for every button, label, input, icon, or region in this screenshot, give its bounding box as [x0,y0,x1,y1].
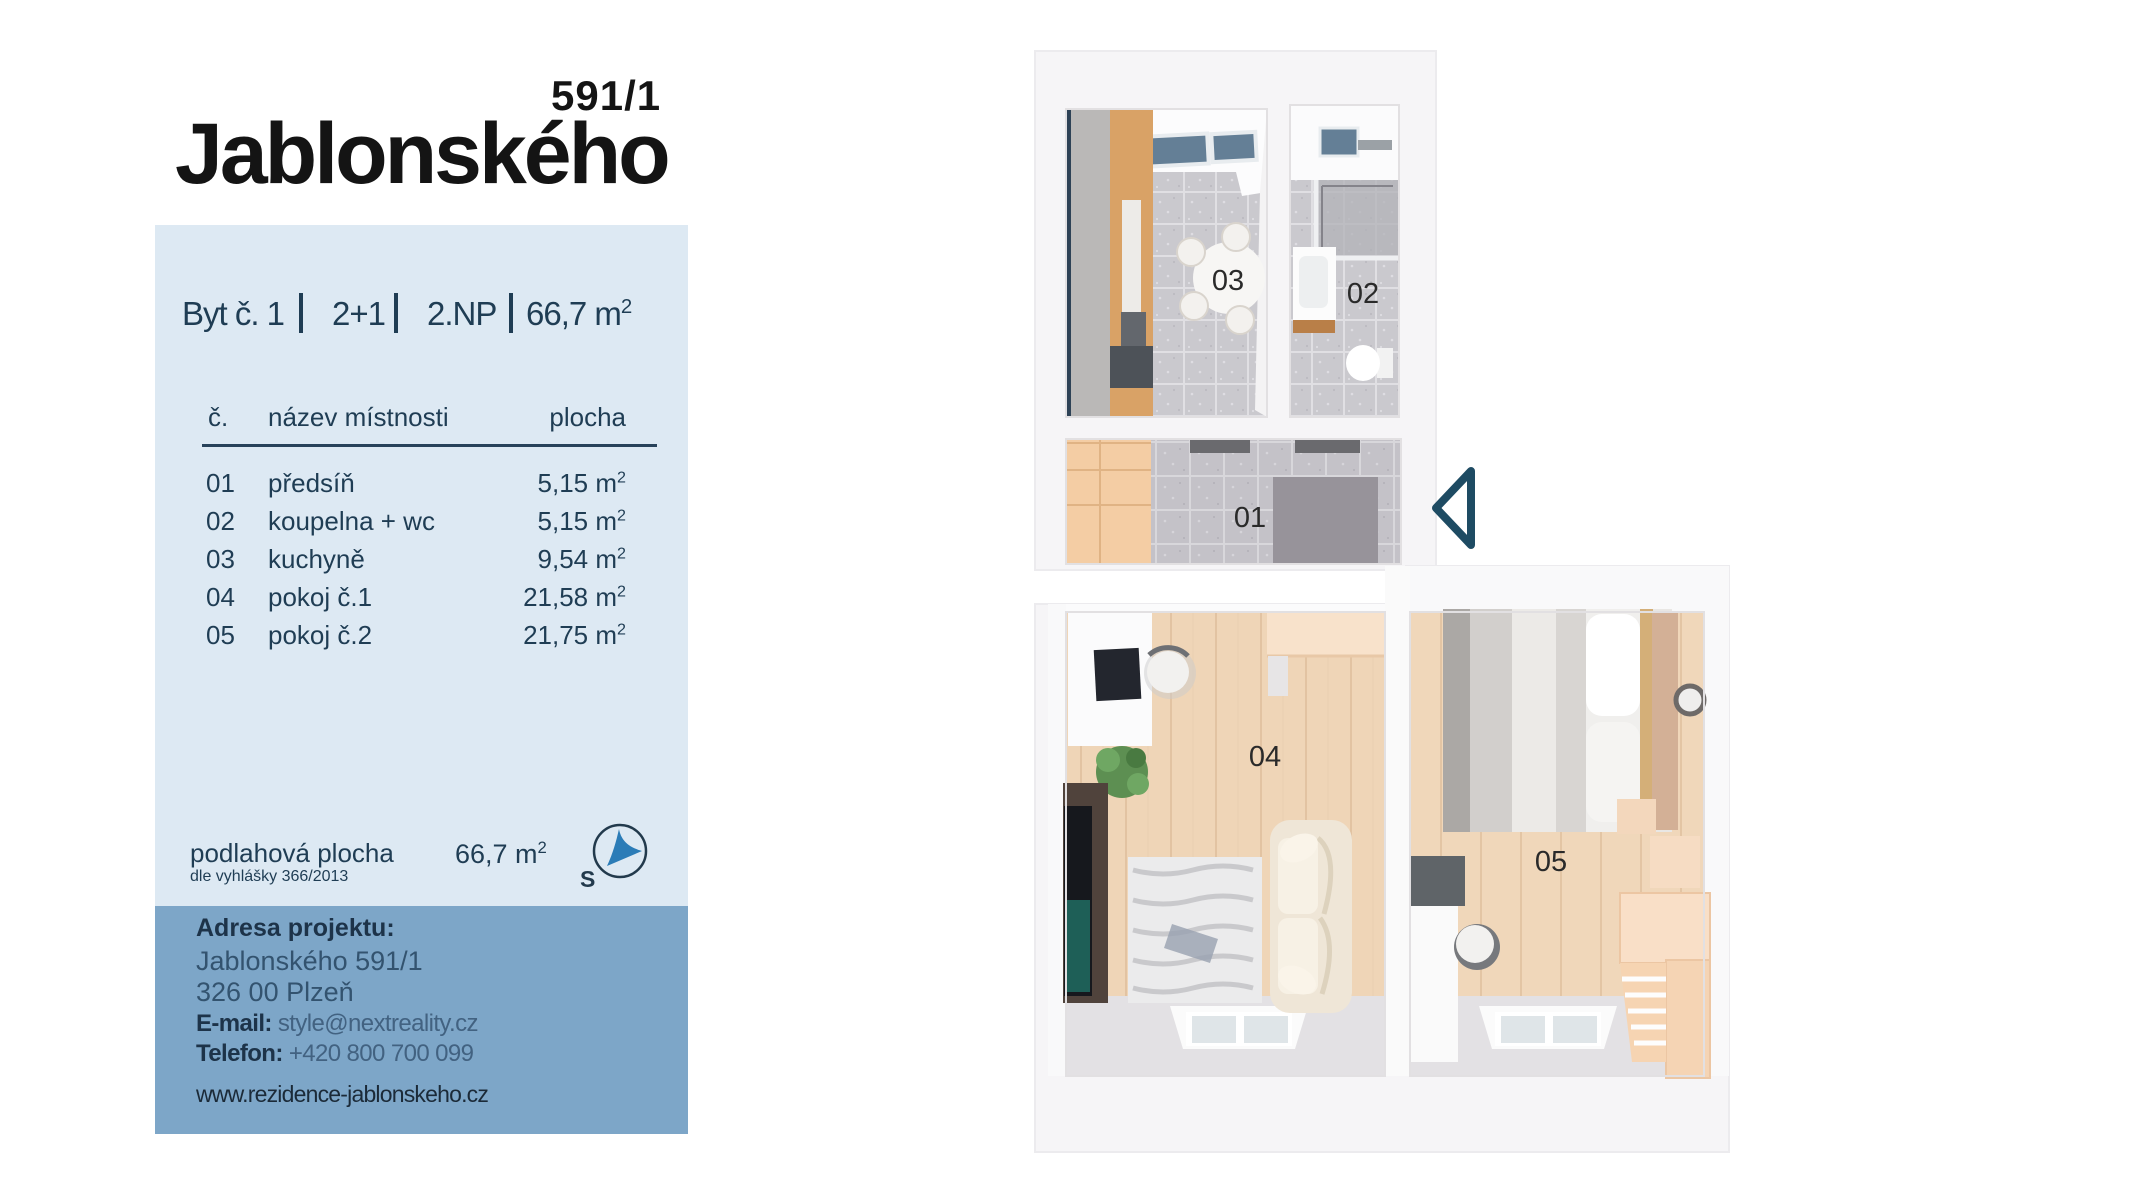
svg-text:01: 01 [1234,502,1266,534]
svg-text:04: 04 [1249,741,1281,773]
svg-text:02: 02 [1347,278,1379,310]
svg-text:05: 05 [1535,846,1567,878]
svg-text:03: 03 [1212,265,1244,297]
svg-text:S: S [580,866,595,892]
